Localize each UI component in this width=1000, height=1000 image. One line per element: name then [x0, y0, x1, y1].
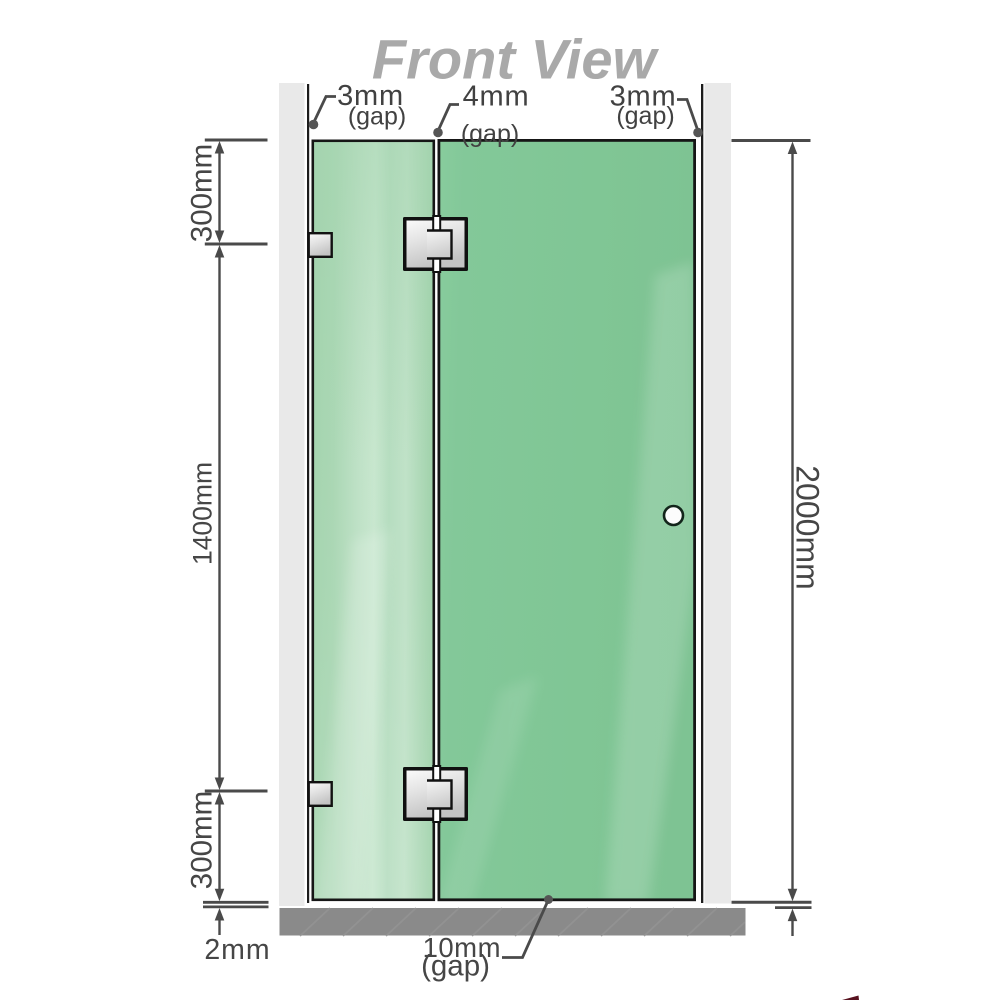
svg-text:300mm: 300mm — [186, 144, 219, 242]
svg-text:300mm: 300mm — [186, 791, 219, 889]
svg-text:2mm: 2mm — [204, 934, 270, 966]
svg-text:(gap): (gap) — [421, 950, 490, 983]
svg-text:(gap): (gap) — [348, 103, 406, 131]
svg-text:(gap): (gap) — [461, 120, 519, 148]
svg-text:2000mm: 2000mm — [790, 465, 826, 590]
svg-text:(gap): (gap) — [616, 102, 674, 130]
svg-text:4mm: 4mm — [463, 81, 530, 113]
svg-text:1400mm: 1400mm — [188, 462, 218, 565]
